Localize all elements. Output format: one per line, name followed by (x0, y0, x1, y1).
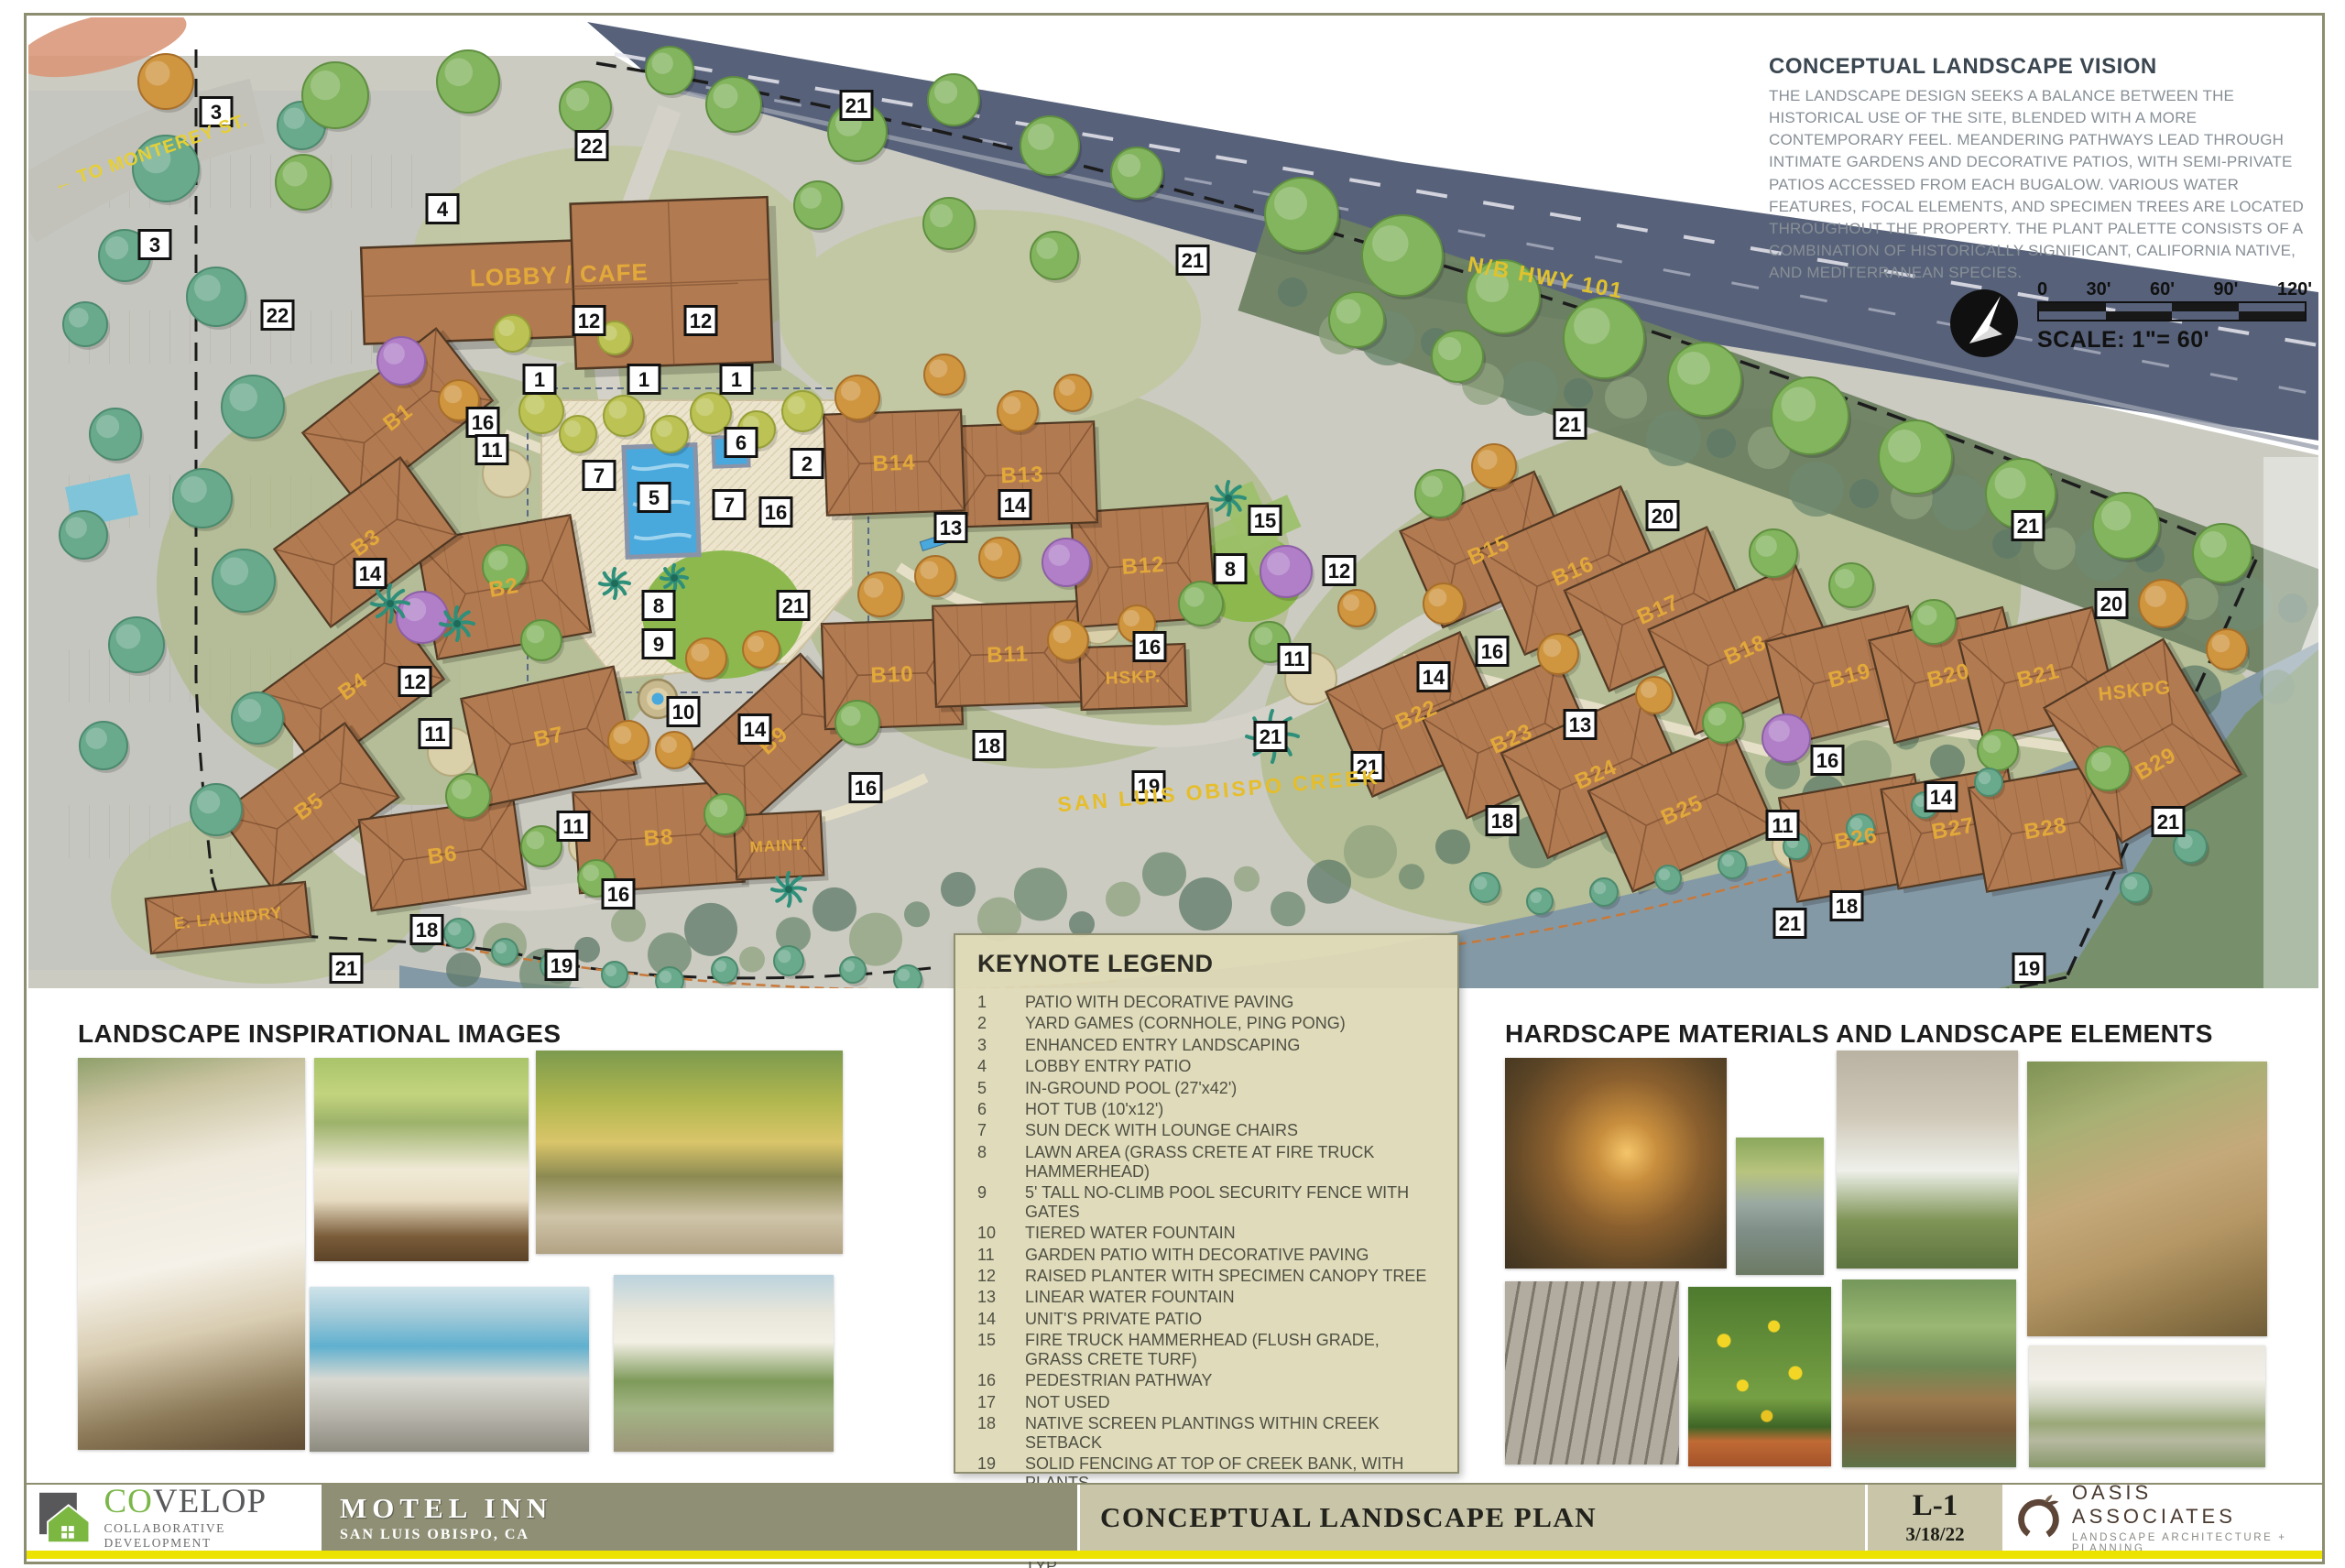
photo-patio-sofa-umbrella (314, 1058, 529, 1261)
svg-text:13: 13 (1569, 713, 1591, 736)
svg-text:16: 16 (1481, 640, 1503, 663)
svg-text:13: 13 (940, 517, 962, 539)
photo-pool-lounge-deck (310, 1287, 589, 1452)
keynote-marker: 21 (778, 592, 809, 620)
svg-text:10: 10 (672, 701, 694, 724)
keynote-marker: 18 (411, 916, 442, 944)
keynote-marker: 9 (643, 630, 674, 659)
svg-text:14: 14 (744, 718, 767, 741)
keynote-marker: 16 (850, 774, 881, 802)
keynote-marker: 14 (1925, 783, 1957, 811)
legend-item-text: PATIO WITH DECORATIVE PAVING (1025, 993, 1441, 1012)
legend-item-text: PEDESTRIAN PATHWAY (1025, 1371, 1441, 1390)
legend-item-text: TIERED WATER FOUNTAIN (1025, 1224, 1441, 1243)
photo-fountain-courtyard (614, 1275, 834, 1452)
svg-text:12: 12 (690, 310, 712, 332)
svg-text:22: 22 (267, 304, 289, 327)
scale-tick-label: 120' (2277, 279, 2312, 301)
legend-item-text: HOT TUB (10'x12') (1025, 1100, 1441, 1119)
legend-item-text: YARD GAMES (CORNHOLE, PING PONG) (1025, 1014, 1441, 1033)
photo-dining-terrace-trees (536, 1051, 843, 1254)
legend-item-text: ENHANCED ENTRY LANDSCAPING (1025, 1036, 1441, 1055)
keynote-marker: 1 (721, 365, 752, 394)
keynote-marker: 1 (628, 365, 660, 394)
firm-name-block: OASIS ASSOCIATES LANDSCAPE ARCHITECTURE … (2072, 1481, 2322, 1554)
developer-block: COVELOP COLLABORATIVE DEVELOPMENT (27, 1485, 322, 1551)
keynote-marker: 18 (1831, 892, 1862, 920)
svg-text:18: 18 (1491, 810, 1513, 833)
keynote-marker: 6 (725, 429, 757, 457)
building-label: B10 (870, 662, 914, 689)
firm-name: OASIS ASSOCIATES (2072, 1481, 2322, 1529)
covelop-logo-icon (39, 1486, 94, 1550)
svg-text:18: 18 (416, 919, 438, 942)
building-label: B2 (487, 573, 521, 603)
sheet-title: CONCEPTUAL LANDSCAPE PLAN (1100, 1501, 1597, 1534)
svg-text:2: 2 (802, 452, 813, 475)
svg-text:7: 7 (724, 494, 735, 517)
svg-text:1: 1 (534, 368, 545, 391)
keynote-marker: 11 (558, 812, 589, 841)
developer-name: COVELOP COLLABORATIVE DEVELOPMENT (104, 1485, 318, 1551)
legend-item-text: NATIVE SCREEN PLANTINGS WITHIN CREEK SET… (1025, 1414, 1441, 1453)
accent-bar (27, 1551, 2322, 1559)
firm-block: OASIS ASSOCIATES LANDSCAPE ARCHITECTURE … (2005, 1485, 2322, 1551)
sheet-stage: LOBBY / CAFEB1B2B3B4B5B6B7B8B9B10B11B12B… (0, 0, 2345, 1568)
keynote-marker: 16 (467, 408, 498, 437)
scale-bar-segment (2172, 303, 2239, 320)
palm-tree (600, 569, 629, 598)
building-label: B12 (1121, 552, 1166, 580)
building-label: HSKP. (1105, 668, 1161, 689)
svg-text:15: 15 (1254, 509, 1276, 532)
svg-text:6: 6 (736, 431, 747, 454)
scale-bar-segment (2039, 303, 2106, 320)
svg-text:21: 21 (1182, 249, 1204, 272)
svg-text:16: 16 (1816, 749, 1838, 772)
building-label: MAINT. (749, 835, 808, 855)
legend-item-text: SUN DECK WITH LOUNGE CHAIRS (1025, 1121, 1441, 1140)
keynote-marker: 21 (2153, 808, 2184, 836)
legend-item-text: IN-GROUND POOL (27'x42') (1025, 1079, 1441, 1098)
legend-items: 1PATIO WITH DECORATIVE PAVING2YARD GAMES… (977, 993, 1441, 1568)
legend-title: KEYNOTE LEGEND (977, 950, 1441, 978)
keynote-marker: 14 (739, 715, 770, 744)
keynote-marker: 11 (1279, 645, 1310, 673)
svg-text:16: 16 (472, 411, 494, 434)
scale-tick-label: 90' (2213, 279, 2238, 301)
building-label: B14 (872, 451, 916, 477)
svg-text:20: 20 (1652, 505, 1674, 528)
svg-text:14: 14 (1423, 666, 1445, 689)
svg-text:14: 14 (1930, 786, 1953, 809)
keynote-marker: 7 (714, 491, 745, 519)
palm-tree (441, 607, 474, 640)
keynote-marker: 16 (1477, 637, 1508, 666)
vision-body: THE LANDSCAPE DESIGN SEEKS A BALANCE BET… (1769, 85, 2324, 284)
keynote-marker: 21 (1554, 410, 1586, 439)
svg-text:12: 12 (1328, 560, 1350, 583)
svg-text:11: 11 (562, 815, 584, 838)
svg-text:11: 11 (424, 723, 445, 746)
inspirational-section-title: LANDSCAPE INSPIRATIONAL IMAGES (78, 1019, 561, 1049)
developer-name-co: CO (104, 1483, 152, 1520)
sheet-number-block: L-1 3/18/22 (1868, 1485, 2005, 1551)
keynote-marker: 21 (841, 92, 872, 120)
svg-text:18: 18 (978, 735, 1000, 757)
keynote-marker: 11 (476, 436, 507, 464)
keynote-marker: 8 (1215, 555, 1246, 583)
svg-text:1: 1 (731, 368, 742, 391)
svg-text:4: 4 (437, 198, 449, 221)
project-block: MOTEL INN SAN LUIS OBISPO, CA (322, 1485, 1080, 1551)
svg-text:12: 12 (578, 310, 600, 332)
sheet-number: L-1 (1913, 1489, 1958, 1523)
svg-text:9: 9 (653, 633, 664, 656)
svg-text:19: 19 (2018, 957, 2040, 980)
keynote-marker: 12 (399, 668, 431, 696)
north-arrow-icon (1946, 285, 2023, 362)
keynote-marker: 13 (935, 514, 966, 542)
keynote-marker: 16 (1134, 633, 1165, 661)
project-location: SAN LUIS OBISPO, CA (340, 1527, 1077, 1543)
hardscape-photos (1505, 1051, 2322, 1481)
photo-outdoor-fireplace (1505, 1058, 1727, 1269)
photo-entry-fountain-grass-pavers (2029, 1345, 2265, 1467)
svg-text:16: 16 (765, 501, 787, 524)
svg-text:18: 18 (1836, 895, 1858, 918)
legend-item-text: 5' TALL NO-CLIMB POOL SECURITY FENCE WIT… (1025, 1183, 1441, 1222)
svg-text:21: 21 (1559, 413, 1581, 436)
keynote-marker: 14 (354, 560, 386, 588)
title-block: COVELOP COLLABORATIVE DEVELOPMENT MOTEL … (27, 1483, 2322, 1562)
svg-text:21: 21 (2017, 515, 2039, 538)
legend-item-text: UNIT'S PRIVATE PATIO (1025, 1310, 1441, 1329)
plan-sheet: LOBBY / CAFEB1B2B3B4B5B6B7B8B9B10B11B12B… (24, 13, 2325, 1564)
svg-text:16: 16 (607, 883, 629, 906)
svg-text:11: 11 (1772, 814, 1793, 837)
scale-tick-label: 0 (2037, 279, 2047, 301)
svg-text:8: 8 (1225, 558, 1236, 581)
palm-tree (372, 585, 409, 622)
keynote-marker: 5 (638, 484, 670, 512)
hardscape-section-title: HARDSCAPE MATERIALS AND LANDSCAPE ELEMEN… (1505, 1019, 2213, 1049)
photo-potted-lemon-tree (1688, 1287, 1831, 1466)
keynote-marker: 14 (999, 491, 1031, 519)
inspirational-photos (78, 1051, 994, 1481)
vision-panel: CONCEPTUAL LANDSCAPE VISION THE LANDSCAP… (1769, 54, 2324, 284)
project-name: MOTEL INN (340, 1492, 1077, 1525)
scale-bar-segment (2239, 303, 2306, 320)
keynote-marker: 18 (974, 732, 1005, 760)
scale-bar-group: 030'60'90'120' SCALE: 1"= 60' (2037, 279, 2312, 354)
palm-tree (661, 565, 687, 591)
legend-item-text: RAISED PLANTER WITH SPECIMEN CANOPY TREE (1025, 1267, 1441, 1286)
legend-item-text: LAWN AREA (GRASS CRETE AT FIRE TRUCK HAM… (1025, 1143, 1441, 1181)
scale-tick-label: 30' (2087, 279, 2111, 301)
keynote-marker: 22 (262, 301, 293, 330)
svg-text:21: 21 (1260, 725, 1282, 748)
scale-bar-segment (2106, 303, 2173, 320)
svg-text:21: 21 (845, 94, 867, 117)
building-label: B8 (643, 824, 674, 851)
svg-text:7: 7 (594, 464, 605, 487)
keynote-marker: 12 (573, 307, 605, 335)
keynote-marker: 11 (1767, 811, 1798, 840)
keynote-marker: 8 (643, 592, 674, 620)
palm-tree (772, 873, 805, 906)
keynote-marker: 12 (1324, 557, 1355, 585)
developer-name-velop: VELOP (153, 1483, 267, 1520)
developer-tagline: COLLABORATIVE DEVELOPMENT (104, 1521, 318, 1551)
keynote-marker: 16 (760, 498, 791, 527)
keynote-marker: 12 (685, 307, 716, 335)
svg-text:11: 11 (481, 439, 502, 462)
photo-stone-pavers (1505, 1281, 1679, 1465)
legend-item-text: LOBBY ENTRY PATIO (1025, 1057, 1441, 1076)
keynote-marker: 13 (1565, 711, 1596, 739)
building-label: B11 (987, 642, 1030, 669)
keynote-marker: 1 (524, 365, 555, 394)
svg-text:8: 8 (653, 594, 664, 617)
keynote-marker: 21 (1255, 723, 1286, 751)
keynote-marker: 15 (1249, 506, 1281, 535)
svg-text:21: 21 (335, 957, 357, 980)
keynote-marker: 3 (139, 231, 170, 259)
keynote-marker: 18 (1487, 807, 1518, 835)
legend-item-text: LINEAR WATER FOUNTAIN (1025, 1288, 1441, 1307)
svg-text:21: 21 (2157, 811, 2179, 833)
keynote-marker: 21 (2012, 512, 2044, 540)
building-label: B6 (426, 841, 459, 869)
keynote-marker: 11 (420, 720, 451, 748)
keynote-marker: 22 (576, 132, 607, 160)
svg-text:11: 11 (1283, 648, 1304, 670)
svg-text:22: 22 (581, 135, 603, 158)
photo-entry-planting (1837, 1051, 2018, 1269)
keynote-marker: 10 (668, 698, 699, 726)
svg-text:1: 1 (638, 368, 649, 391)
svg-text:16: 16 (855, 777, 877, 800)
legend-item-text: NOT USED (1025, 1393, 1441, 1412)
legend-item-number: 2 (977, 1014, 1025, 1033)
scale-panel: 030'60'90'120' SCALE: 1"= 60' (1946, 279, 2330, 371)
svg-text:21: 21 (782, 594, 804, 617)
keynote-marker: 20 (1647, 502, 1678, 530)
keynote-legend: KEYNOTE LEGEND 1PATIO WITH DECORATIVE PA… (954, 933, 1459, 1474)
keynote-marker: 19 (546, 952, 577, 980)
scale-caption: SCALE: 1"= 60' (2037, 327, 2312, 354)
keynote-marker: 21 (1774, 909, 1805, 938)
svg-text:16: 16 (1139, 636, 1161, 659)
sheet-date: 3/18/22 (1905, 1523, 1964, 1546)
keynote-marker: 2 (791, 450, 823, 478)
keynote-marker: 21 (1177, 246, 1208, 275)
svg-text:21: 21 (1779, 912, 1801, 935)
legend-item-text: FIRE TRUCK HAMMERHEAD (FLUSH GRADE, GRAS… (1025, 1331, 1441, 1369)
photo-stone-birdbath (1736, 1138, 1824, 1275)
svg-text:3: 3 (149, 234, 160, 256)
keynote-marker: 19 (2013, 954, 2045, 983)
svg-text:12: 12 (404, 670, 426, 693)
keynote-marker: 4 (427, 195, 458, 223)
palm-tree (1212, 482, 1245, 515)
scale-tick-label: 60' (2150, 279, 2175, 301)
svg-text:19: 19 (551, 954, 573, 977)
keynote-marker: 16 (603, 880, 634, 909)
svg-text:14: 14 (1004, 494, 1027, 517)
photo-tiered-fountain-palms (1842, 1279, 2016, 1467)
keynote-marker: 21 (331, 954, 362, 983)
oasis-logo-icon (2014, 1488, 2063, 1547)
scale-tick-labels: 030'60'90'120' (2037, 279, 2312, 301)
svg-text:5: 5 (649, 486, 660, 509)
keynote-marker: 20 (2096, 590, 2127, 618)
vision-title: CONCEPTUAL LANDSCAPE VISION (1769, 54, 2324, 80)
photo-garden-gravel-path (2027, 1062, 2267, 1336)
photo-spanish-entry-gate (78, 1058, 305, 1450)
keynote-marker: 7 (584, 462, 615, 490)
svg-text:14: 14 (359, 562, 382, 585)
keynote-marker: 16 (1812, 746, 1843, 775)
svg-text:20: 20 (2100, 593, 2122, 615)
legend-item-text: GARDEN PATIO WITH DECORATIVE PAVING (1025, 1246, 1441, 1265)
scale-bar (2037, 301, 2307, 321)
legend-item-number: 1 (977, 993, 1025, 1012)
building-label: B13 (1000, 463, 1044, 489)
sheet-title-block: CONCEPTUAL LANDSCAPE PLAN (1080, 1485, 1868, 1551)
keynote-marker: 14 (1418, 663, 1449, 691)
